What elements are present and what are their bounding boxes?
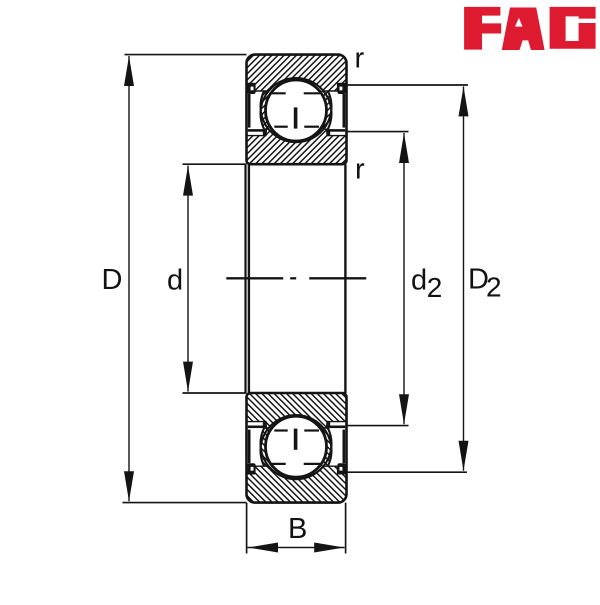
- svg-text:2: 2: [486, 271, 502, 302]
- svg-text:d: d: [167, 265, 183, 297]
- svg-text:r: r: [355, 43, 365, 75]
- svg-text:B: B: [288, 513, 307, 545]
- svg-text:d: d: [411, 264, 427, 296]
- svg-text:D: D: [102, 264, 123, 296]
- svg-text:2: 2: [427, 272, 443, 303]
- svg-text:r: r: [355, 153, 365, 185]
